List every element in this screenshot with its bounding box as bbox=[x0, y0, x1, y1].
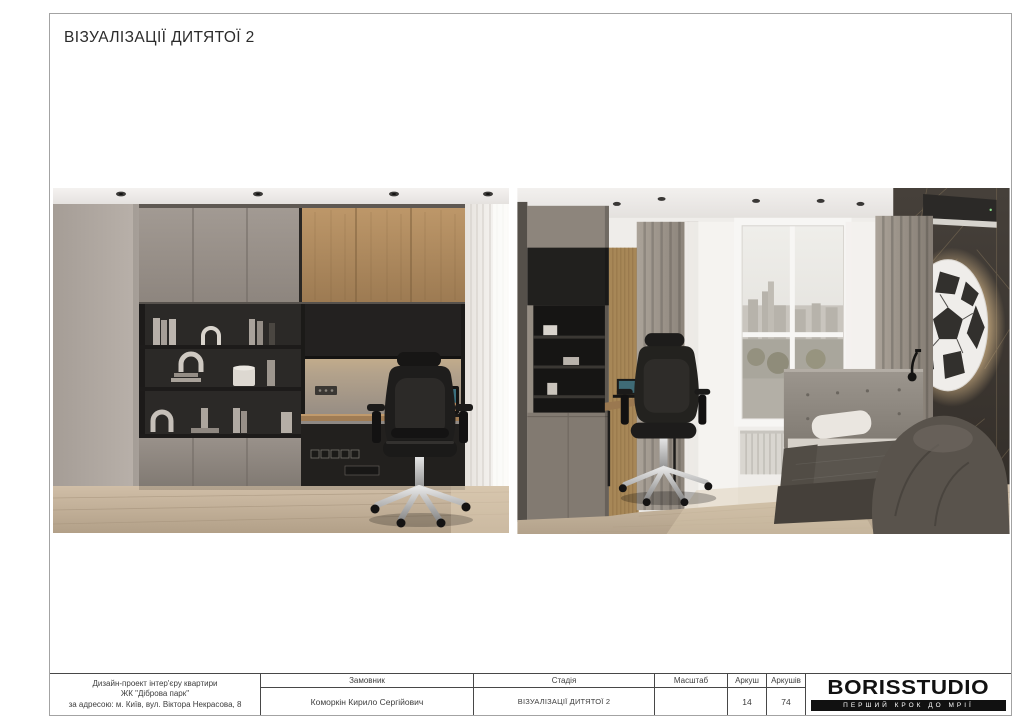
sheets-total-cell: Аркушів 74 bbox=[766, 674, 805, 715]
stage-cell: Стадія ВІЗУАЛІЗАЦІЇ ДИТЯТОЇ 2 bbox=[473, 674, 654, 715]
client-label: Замовник bbox=[261, 674, 473, 688]
stage-value: ВІЗУАЛІЗАЦІЇ ДИТЯТОЇ 2 bbox=[474, 688, 654, 715]
page-title: ВІЗУАЛІЗАЦІЇ ДИТЯТОЇ 2 bbox=[64, 29, 255, 47]
wall-unit bbox=[139, 204, 465, 304]
sheet-value: 14 bbox=[728, 688, 766, 715]
render-workspace-view bbox=[53, 188, 509, 533]
wardrobe-unit bbox=[517, 202, 608, 522]
scale-cell: Масштаб bbox=[654, 674, 727, 715]
studio-logo: BORISSTUDIO bbox=[828, 678, 990, 699]
sheets-total-value: 74 bbox=[767, 688, 805, 715]
left-wall bbox=[53, 204, 139, 488]
render-room-svg bbox=[516, 188, 1011, 534]
design-sheet: ВІЗУАЛІЗАЦІЇ ДИТЯТОЇ 2 bbox=[0, 0, 1024, 724]
scale-label: Масштаб bbox=[655, 674, 727, 688]
logo-tagline: ПЕРШИЙ КРОК ДО МРІЇ bbox=[843, 702, 974, 709]
logo-cell: BORISSTUDIO ПЕРШИЙ КРОК ДО МРІЇ bbox=[805, 674, 1011, 715]
sheet-number-cell: Аркуш 14 bbox=[727, 674, 766, 715]
sheets-total-label: Аркушів bbox=[767, 674, 805, 688]
render-workspace-svg bbox=[53, 188, 509, 533]
logo-tagline-bar: ПЕРШИЙ КРОК ДО МРІЇ bbox=[811, 700, 1006, 711]
project-line3: за адресою: м. Київ, вул. Віктора Некрас… bbox=[69, 700, 242, 710]
curtain bbox=[465, 204, 509, 486]
brand-plaque bbox=[345, 466, 379, 475]
bookshelf bbox=[139, 304, 301, 486]
client-cell: Замовник Коморкін Кирило Сергійович bbox=[260, 674, 473, 715]
client-value: Коморкін Кирило Сергійович bbox=[261, 688, 473, 715]
project-line1: Дизайн-проект інтер'єру квартири bbox=[92, 679, 217, 689]
title-block: Дизайн-проект інтер'єру квартири ЖК "Діб… bbox=[50, 673, 1011, 715]
render-room-view bbox=[516, 188, 1011, 534]
page-frame: ВІЗУАЛІЗАЦІЇ ДИТЯТОЇ 2 bbox=[49, 13, 1012, 716]
project-line2: ЖК "Діброва парк" bbox=[121, 689, 189, 699]
scale-value bbox=[655, 688, 727, 715]
project-info-cell: Дизайн-проект інтер'єру квартири ЖК "Діб… bbox=[50, 674, 260, 715]
stage-label: Стадія bbox=[474, 674, 654, 688]
sheet-label: Аркуш bbox=[728, 674, 766, 688]
